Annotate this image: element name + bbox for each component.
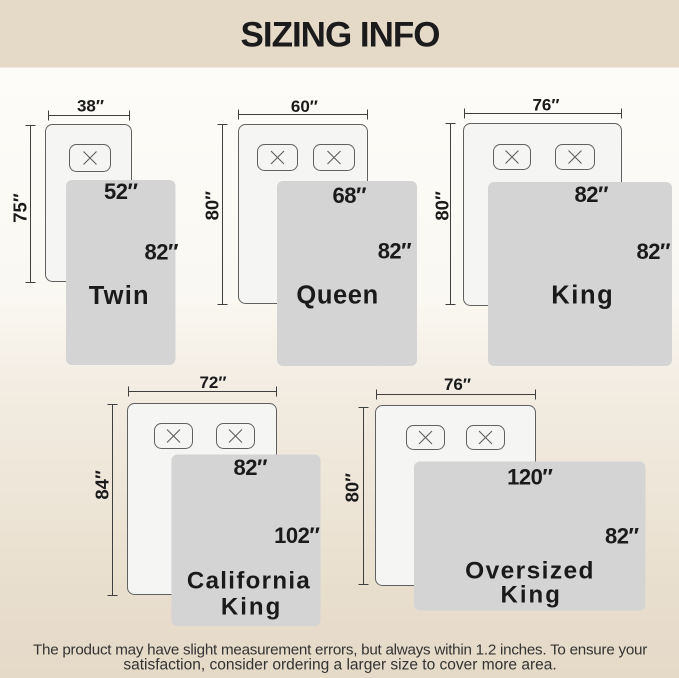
svg-text:80″: 80″ [431,191,452,221]
svg-text:82″: 82″ [636,239,670,264]
svg-text:68″: 68″ [332,183,366,208]
svg-text:80″: 80″ [201,191,222,221]
svg-text:Twin: Twin [89,282,150,310]
svg-text:82″: 82″ [144,240,178,265]
svg-text:82″: 82″ [574,182,608,207]
svg-text:52″: 52″ [104,179,138,204]
svg-text:82″: 82″ [233,455,267,480]
svg-text:SIZING INFO: SIZING INFO [241,16,440,55]
svg-text:76″: 76″ [532,96,559,115]
svg-text:82″: 82″ [605,524,639,549]
svg-text:102″: 102″ [274,523,320,548]
svg-text:satisfaction, consider orderin: satisfaction, consider ordering a larger… [123,657,556,674]
svg-text:75″: 75″ [9,193,30,223]
svg-text:120″: 120″ [507,465,553,490]
svg-text:82″: 82″ [378,239,412,264]
svg-text:King: King [551,282,614,310]
svg-text:72″: 72″ [199,373,226,392]
svg-text:King: King [221,594,282,621]
svg-text:Queen: Queen [296,282,378,310]
svg-text:80″: 80″ [341,473,362,503]
svg-text:60″: 60″ [291,97,318,116]
svg-text:California: California [187,568,311,595]
svg-text:76″: 76″ [444,375,471,394]
svg-text:38″: 38″ [77,97,104,116]
svg-text:King: King [501,581,562,608]
svg-text:84″: 84″ [91,470,112,500]
